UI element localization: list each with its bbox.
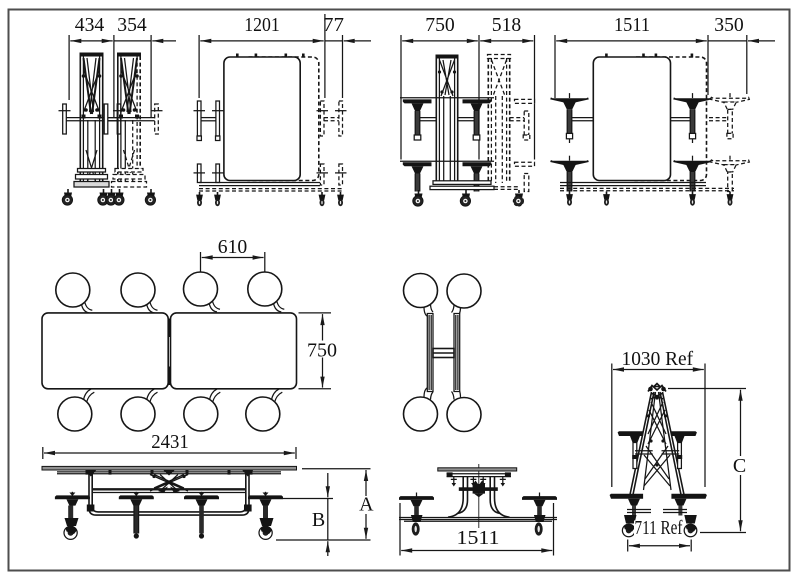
- svg-text:434: 434: [75, 14, 105, 36]
- svg-text:2431: 2431: [151, 431, 189, 453]
- svg-text:1511: 1511: [614, 14, 650, 36]
- svg-text:354: 354: [117, 14, 147, 36]
- svg-text:B: B: [312, 509, 325, 531]
- svg-text:518: 518: [492, 14, 522, 36]
- svg-text:1511: 1511: [457, 527, 500, 549]
- svg-text:1030 Ref: 1030 Ref: [622, 348, 694, 370]
- svg-text:77: 77: [323, 14, 344, 36]
- svg-text:610: 610: [218, 236, 248, 258]
- svg-text:711 Ref: 711 Ref: [635, 517, 683, 539]
- svg-text:C: C: [733, 455, 746, 477]
- svg-text:350: 350: [714, 14, 744, 36]
- svg-text:750: 750: [307, 340, 337, 362]
- svg-text:A: A: [359, 494, 374, 516]
- svg-text:1201: 1201: [244, 14, 280, 36]
- svg-text:750: 750: [425, 14, 455, 36]
